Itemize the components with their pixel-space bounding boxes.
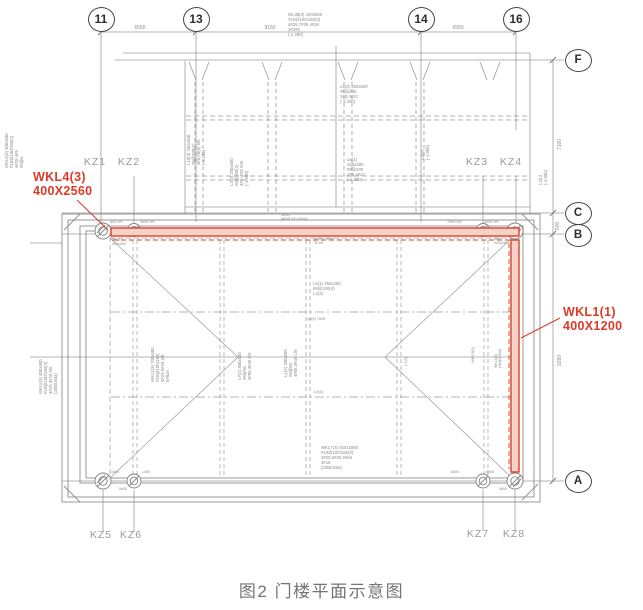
building-walls xyxy=(62,214,540,502)
grid-bubble-A: A xyxy=(565,470,592,493)
plan-linework xyxy=(0,0,643,610)
beam-annotation: 6#05 xyxy=(486,470,494,474)
beam-annotation: 9#05 2/6/6b 3C#2 xyxy=(314,237,334,246)
beam-annotation: L3(3) 250x600 #8@200(2) 4#5+#25 #45 (-1.… xyxy=(229,158,249,186)
beam-annotation: 5#05 xyxy=(119,487,127,491)
beam-annotation: 5#05 400x260 xyxy=(494,237,508,245)
beam-annotation: L4(5) 7#05 xyxy=(307,317,325,321)
beam-annotation: L4(9) (-1.05b) xyxy=(420,145,430,160)
dimension-text: 7100 xyxy=(557,139,563,150)
beam-annotation: 1#05 [#8@100 (50a)] xyxy=(281,213,307,222)
dimension-text: 9280 xyxy=(557,355,563,366)
beam-annotation: WKL5(3) 400x500 #10@100/150(2) 4#25,4#25… xyxy=(38,359,58,394)
beam-annotation: 6#05 xyxy=(451,470,459,474)
beam-annotation: 2#05 5/2 xyxy=(484,220,499,224)
beam-annotation: L5(1) 250x600 #8@200 2#8,4#22 (-1.200) xyxy=(347,157,365,182)
beam-annotation: L5(1) 250x200 #8@100(4) L4(2) xyxy=(313,281,341,296)
column-label-kz7: KZ7 xyxy=(467,528,489,540)
beam-annotation: L#(2) 300x600 #8@50 3#05,3#45 5/5 xyxy=(237,352,252,380)
grid-bubble-13: 13 xyxy=(183,7,210,32)
beam-annotation: WKL3(5) xyxy=(471,347,476,363)
beam-annotation: L6(3) 250x600 #8@200 2#8,4#22 (-1.200) xyxy=(340,84,368,104)
beam-annotation: L#05 xyxy=(142,470,150,474)
grid-bubble-F: F xyxy=(565,49,592,72)
beam-annotation: L4(n) (-1.05b) xyxy=(538,170,548,185)
beam-annotation: L5(2) xyxy=(314,390,323,395)
column-label-kz6: KZ6 xyxy=(120,529,142,541)
dimension-text: 9160 xyxy=(264,25,275,31)
grid-bubble-11: 11 xyxy=(88,7,115,32)
beam-annotation: L1(9) 300x600 #8@50 4#05,3#45 L/6 xyxy=(283,349,298,377)
beam-annotation: 3#05 5/2 xyxy=(140,220,155,224)
dimension-text: 6550 xyxy=(134,25,145,31)
grid-bubble-C: C xyxy=(565,202,592,225)
figure-caption: 图2 门楼平面示意图 xyxy=(0,577,643,602)
canopy-structure xyxy=(185,46,530,214)
column-label-kz1: KZ1 xyxy=(84,156,106,168)
column-label-kz2: KZ2 xyxy=(118,156,140,168)
dimension-text: 500 xyxy=(555,222,561,230)
beam-annotation: WKL1(5) [#8@# 50a] xyxy=(494,349,502,368)
column-label-kz4: KZ4 xyxy=(500,156,522,168)
grid-bubble-B: B xyxy=(565,224,592,247)
beam-annotation: L10(3) 250x300 #8@200(2) 4#5,#8(5) 5/5 (… xyxy=(186,135,206,165)
dimension-ticks xyxy=(98,29,556,484)
dimension-text: 6550 xyxy=(452,25,463,31)
beam-annotation: 5#05 xyxy=(499,487,507,491)
beam-annotation: 7#05 5/2 xyxy=(447,220,462,224)
column-label-kz3: KZ3 xyxy=(466,156,488,168)
beam-highlight-label: WKL4(3) 400X2560 xyxy=(33,170,92,198)
column-label-kz8: KZ8 xyxy=(503,528,525,540)
beam-highlight-label: WKL1(1) 400X1200 xyxy=(563,305,622,333)
column-label-kz5: KZ5 xyxy=(90,529,112,541)
beam-annotation: WL39(3) 400x600 #10@100/150(2) 4#25,7#25… xyxy=(288,12,322,37)
drawing-figure: 11131416FCBAKZ1KZ2KZ3KZ4KZ5KZ6KZ7KZ86550… xyxy=(0,0,643,610)
beam-annotation: WKL7(3) 400x2060 #10@100/150(2) 4#25,5#2… xyxy=(321,445,358,470)
roof-framing xyxy=(110,238,512,478)
beam-annotation: WKL5(3) 400x500 #10@100/150(2) 4#25 4#5 … xyxy=(4,133,24,168)
grid-bubble-16: 16 xyxy=(503,7,530,32)
grid-bubble-14: 14 xyxy=(408,7,435,32)
beam-annotation: L7(3) xyxy=(404,357,409,366)
beam-annotation: #05 5/2 xyxy=(110,220,123,224)
beam-annotation: 5#05 400x260 xyxy=(112,238,126,246)
beam-annotation: WKL2(3) 700x500 #10@100(150) 4#25,5#25 5… xyxy=(150,347,170,382)
beam-annotation: 1#05 xyxy=(111,470,119,474)
